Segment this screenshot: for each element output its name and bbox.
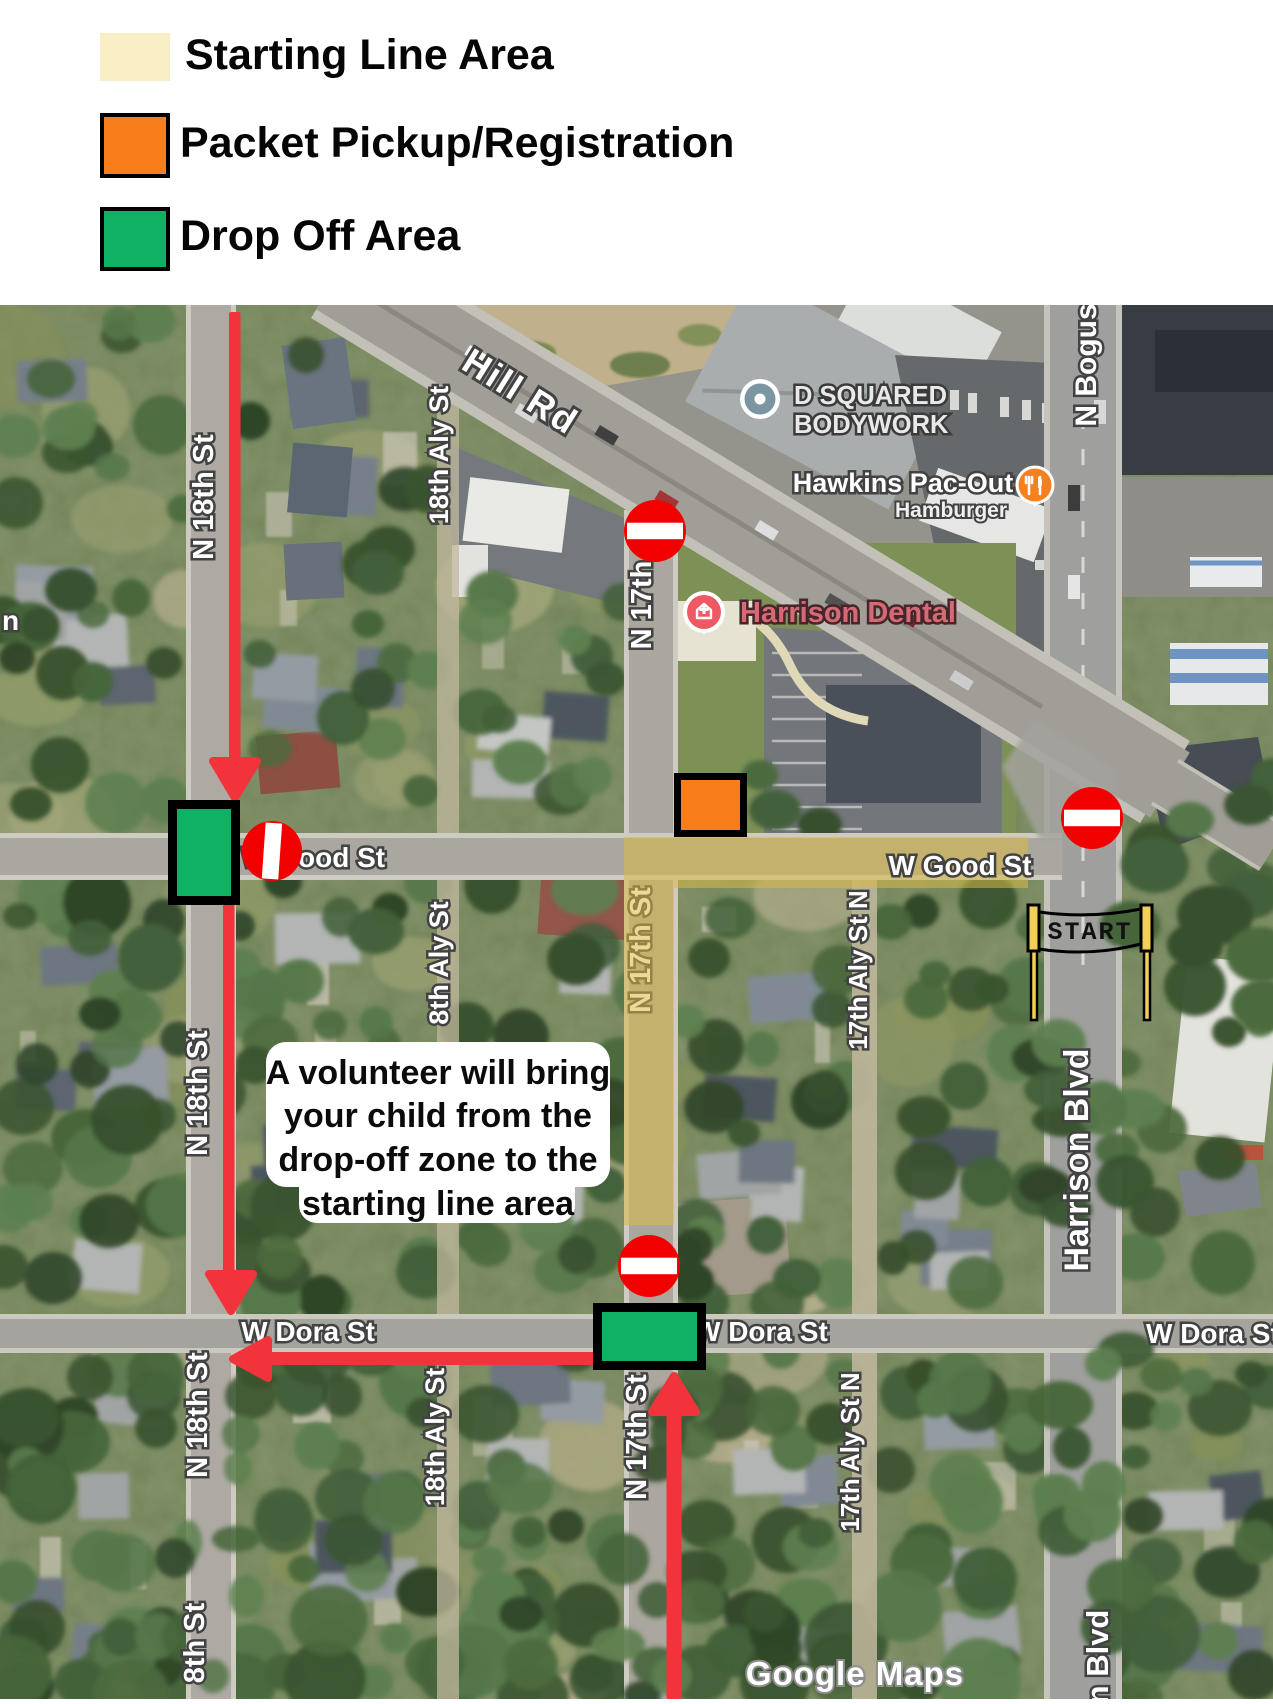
svg-text:N 18th St: N 18th St bbox=[188, 434, 220, 560]
svg-text:BODYWORK: BODYWORK bbox=[794, 411, 949, 439]
svg-text:W Good St: W Good St bbox=[888, 850, 1031, 881]
svg-text:8th St: 8th St bbox=[179, 1602, 211, 1683]
svg-text:18th Aly St: 18th Aly St bbox=[424, 386, 454, 525]
svg-text:N 17th St: N 17th St bbox=[621, 1374, 653, 1500]
svg-text:Hawkins Pac-Out: Hawkins Pac-Out bbox=[793, 468, 1014, 498]
svg-text:N Bogus: N Bogus bbox=[1070, 305, 1103, 427]
svg-text:A volunteer will bring: A volunteer will bring bbox=[266, 1054, 610, 1092]
svg-text:START: START bbox=[1047, 918, 1132, 947]
svg-text:17th Aly St N: 17th Aly St N bbox=[843, 890, 873, 1049]
svg-text:Harrison Blvd: Harrison Blvd bbox=[1058, 1049, 1096, 1272]
svg-text:Google Maps: Google Maps bbox=[746, 1655, 964, 1692]
svg-text:8th Aly St: 8th Aly St bbox=[424, 901, 454, 1025]
svg-text:W Dora St: W Dora St bbox=[694, 1316, 828, 1347]
svg-text:n: n bbox=[2, 605, 19, 636]
svg-text:D SQUARED: D SQUARED bbox=[794, 382, 947, 410]
svg-text:Harrison Dental: Harrison Dental bbox=[740, 597, 956, 629]
svg-text:starting line area: starting line area bbox=[302, 1185, 575, 1223]
svg-text:17th Aly St N: 17th Aly St N bbox=[835, 1372, 865, 1531]
svg-text:your child from the: your child from the bbox=[284, 1097, 592, 1135]
svg-text:W Dora St: W Dora St bbox=[1146, 1318, 1273, 1349]
svg-text:Hamburger: Hamburger bbox=[895, 499, 1007, 522]
svg-text:n Blvd: n Blvd bbox=[1080, 1610, 1115, 1699]
svg-text:18th Aly St: 18th Aly St bbox=[420, 1368, 450, 1507]
svg-text:N 18th St: N 18th St bbox=[182, 1352, 214, 1478]
svg-text:N 18th St: N 18th St bbox=[182, 1030, 214, 1156]
svg-text:N 17th: N 17th bbox=[626, 561, 658, 650]
svg-text:drop-off zone to the: drop-off zone to the bbox=[278, 1141, 597, 1179]
